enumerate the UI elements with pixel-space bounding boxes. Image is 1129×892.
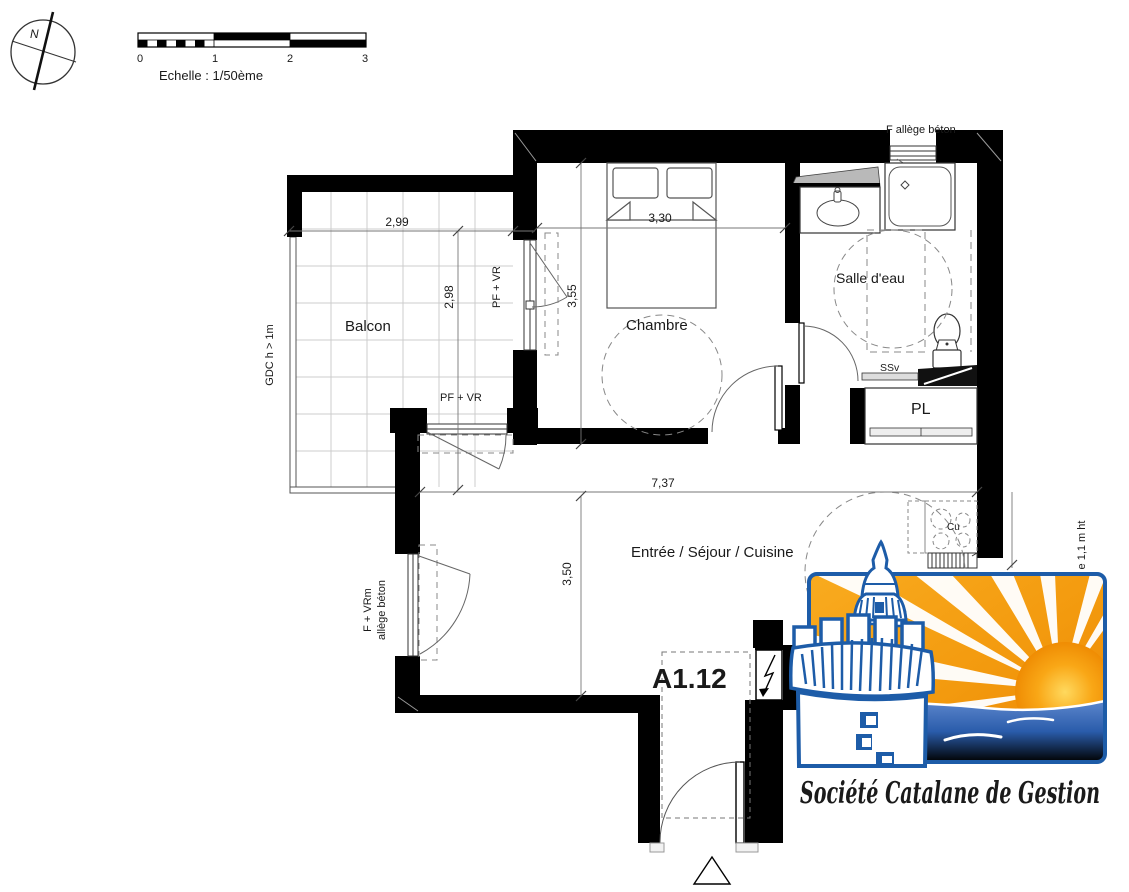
living-balcony-window <box>418 424 513 469</box>
annotation-pf-vr-vertical: PF + VR <box>491 266 503 308</box>
dim-balcony-width: 2,99 <box>385 215 409 229</box>
annotation-bath-window: F allège béton <box>886 124 956 136</box>
floor-plan-page: N 0 1 2 3 Echelle : 1/50ème <box>0 0 1129 892</box>
room-label-living: Entrée / Séjour / Cuisine <box>631 544 794 561</box>
dim-bedroom-depth: 3,55 <box>565 284 579 308</box>
room-label-closet: PL <box>911 401 931 418</box>
annotation-f-vrm-line2: allège béton <box>376 580 388 640</box>
scale-caption: Echelle : 1/50ème <box>159 68 263 83</box>
scale-tick-0: 0 <box>137 53 143 65</box>
bedroom-door <box>712 366 782 432</box>
annotation-towel-dryer: SSv <box>880 362 900 374</box>
annotation-guardrail: GDC h > 1m <box>264 324 276 385</box>
balcony-guardrail <box>290 237 408 493</box>
annotation-kitchen-sill: e 1,1 m ht <box>1076 521 1088 570</box>
kitchen-counter-hatch <box>928 553 977 568</box>
shower <box>885 163 955 230</box>
room-label-balcony: Balcon <box>345 318 391 335</box>
kitchen-block <box>908 501 977 568</box>
annotation-cooktop: Cu <box>947 522 960 533</box>
dim-living-depth: 3,50 <box>560 562 574 586</box>
room-label-bedroom: Chambre <box>626 317 688 334</box>
bedroom-balcony-window <box>524 233 567 355</box>
bathroom-door <box>799 323 858 383</box>
entry-door <box>650 762 758 852</box>
company-name: Société Catalane de Gestion <box>800 776 1100 811</box>
dim-balcony-depth: 2,98 <box>442 285 456 309</box>
unit-number: A1.12 <box>652 663 727 694</box>
dim-bedroom-width: 3,30 <box>648 211 672 225</box>
entrance-triangle-marker <box>694 857 730 884</box>
compass-rose: N <box>11 12 76 90</box>
scale-bar: 0 1 2 3 Echelle : 1/50ème <box>137 33 368 83</box>
room-label-bathroom: Salle d'eau <box>836 270 905 286</box>
scale-tick-1: 1 <box>212 53 218 65</box>
scale-tick-3: 3 <box>362 53 368 65</box>
electrical-panel <box>756 650 782 700</box>
bed <box>607 163 716 308</box>
toilet <box>933 314 961 368</box>
vanity-sink <box>790 167 880 233</box>
scale-tick-2: 2 <box>287 53 293 65</box>
dim-living-width: 7,37 <box>651 476 675 490</box>
annotation-f-vrm-line1: F + VRm <box>362 588 374 632</box>
living-west-window <box>408 545 470 660</box>
floor-plan-drawing: N 0 1 2 3 Echelle : 1/50ème <box>0 0 1129 892</box>
compass-north-label: N <box>30 27 39 41</box>
company-logo: Société Catalane de Gestion <box>791 542 1115 811</box>
annotation-pf-vr-horizontal: PF + VR <box>440 392 482 404</box>
